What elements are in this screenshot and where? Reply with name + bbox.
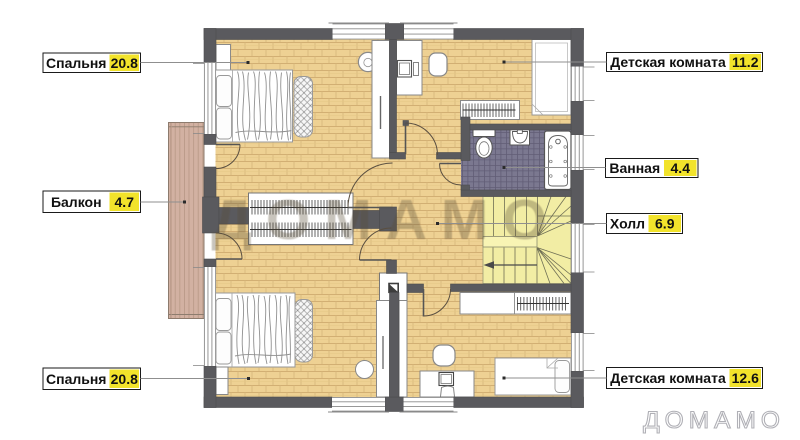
svg-text:11.2: 11.2 — [732, 54, 759, 70]
svg-text:20.8: 20.8 — [111, 371, 138, 387]
svg-text:Балкон: Балкон — [51, 194, 102, 210]
svg-text:Ванная: Ванная — [609, 160, 660, 176]
svg-text:ДОМАМО: ДОМАМО — [211, 188, 560, 252]
svg-text:6.9: 6.9 — [655, 216, 675, 232]
svg-text:Спальня: Спальня — [46, 55, 106, 71]
svg-text:Спальня: Спальня — [46, 371, 106, 387]
svg-text:12.6: 12.6 — [732, 370, 759, 386]
svg-text:Холл: Холл — [610, 216, 645, 232]
svg-text:Детская комната: Детская комната — [610, 54, 726, 70]
svg-text:ДОМАМО: ДОМАМО — [643, 407, 785, 434]
svg-text:Детская комната: Детская комната — [610, 370, 726, 386]
svg-text:4.4: 4.4 — [671, 160, 691, 176]
svg-text:4.7: 4.7 — [115, 194, 135, 210]
svg-text:20.8: 20.8 — [111, 55, 138, 71]
